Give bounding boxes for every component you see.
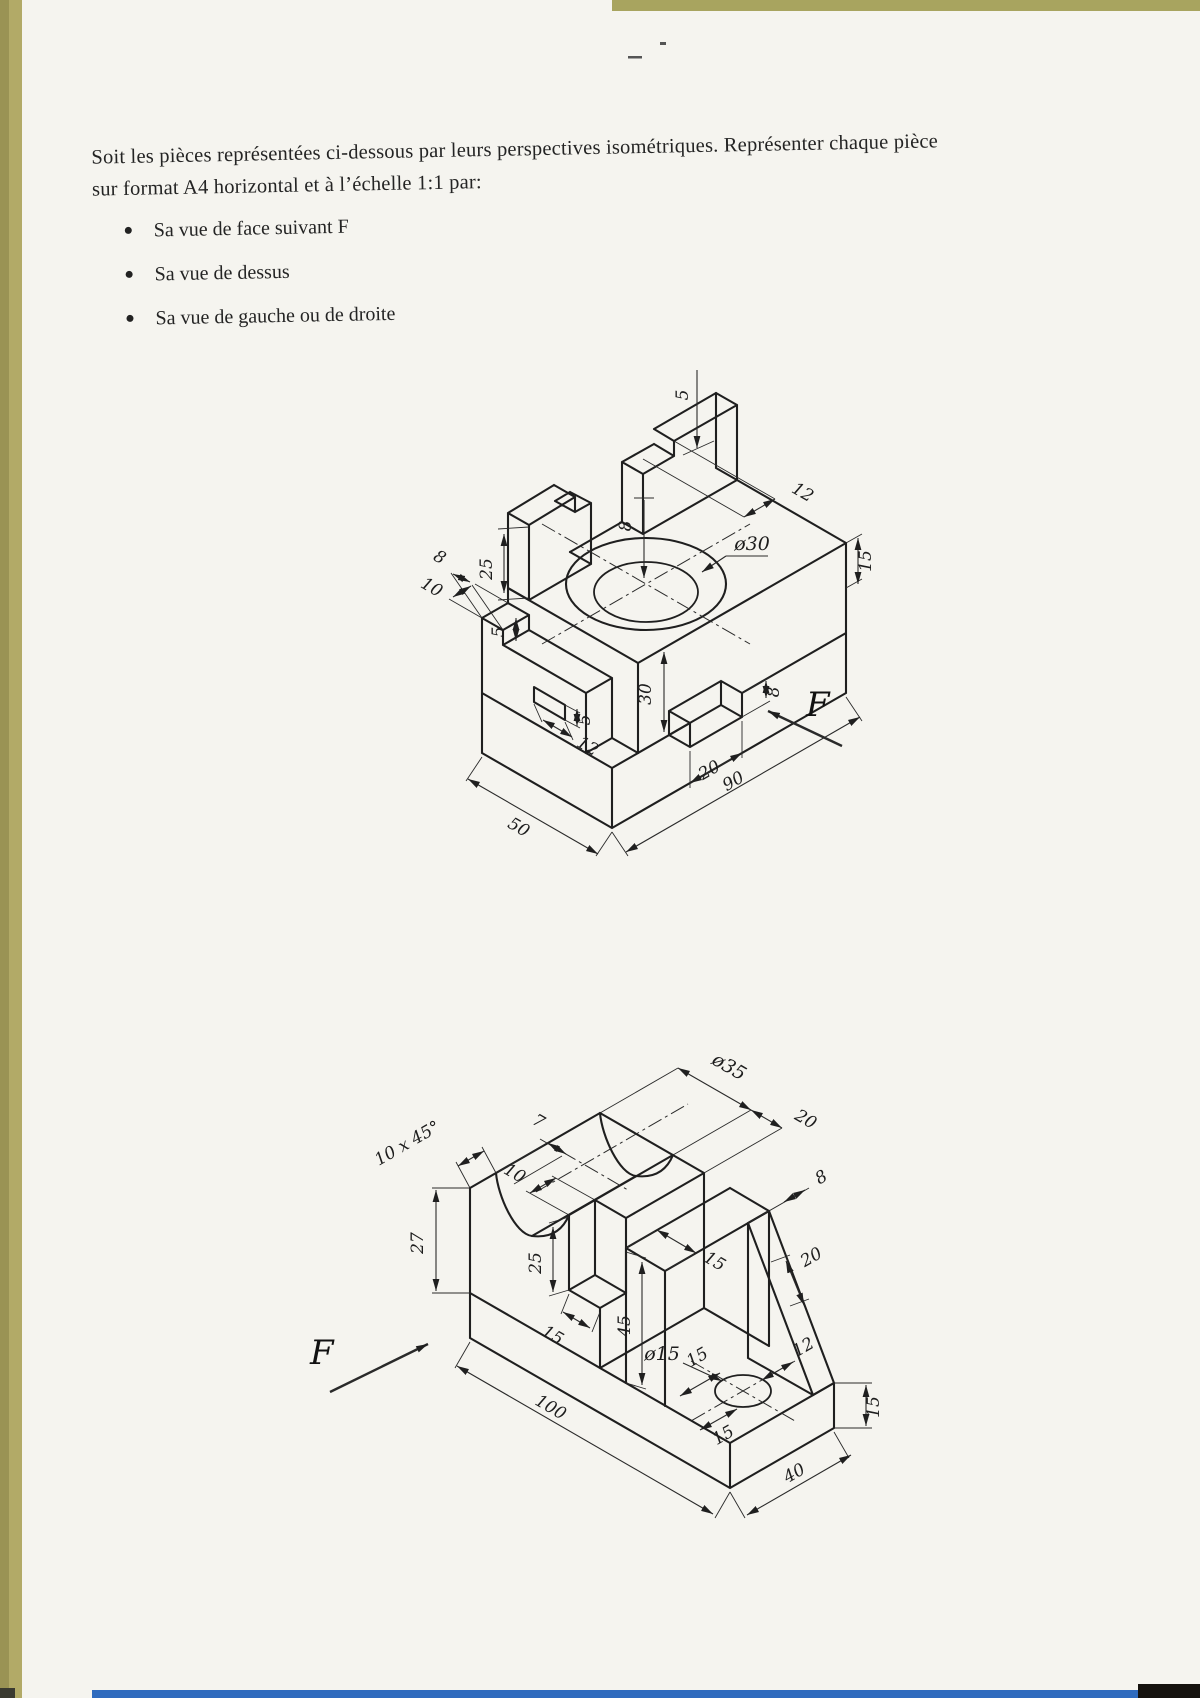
fig2-dim-rib-length: 20 (796, 1244, 826, 1273)
fig2-dim-base-height: 15 (864, 1396, 884, 1418)
fig2-dim-notch-depth: 25 (526, 1252, 546, 1275)
fig2-wedge-rib (748, 1211, 834, 1395)
scan-speck (660, 42, 666, 45)
fig2-groove-centerlines (536, 1104, 688, 1192)
fig2-dim-hole-diameter: ø15 (643, 1343, 680, 1365)
fig2-view-direction-label: F (309, 1333, 335, 1373)
fig2-dim-width: 40 (779, 1460, 809, 1489)
fig1-dimensions: 25 5 12 15 8 ø30 8 (417, 370, 876, 856)
fig2-dim-pillar-height: 45 (615, 1315, 635, 1338)
figure1-isometric-drawing: 25 5 12 15 8 ø30 8 (417, 370, 876, 856)
fig1-dim-edge-height: 15 (856, 550, 876, 572)
fig2-dim-hole-to-edge: 12 (789, 1334, 818, 1362)
fig1-dim-notch-height: 8 (764, 686, 784, 697)
scanned-exercise-page: Soit les pièces représentées ci-dessous … (0, 0, 1200, 1698)
fig2-dim-top-edge: 7 (529, 1110, 549, 1133)
fig2-base-outline (470, 1293, 834, 1488)
fig2-dim-pillar-side: 15 (683, 1344, 712, 1372)
fig1-post-left (508, 485, 591, 600)
fig1-base-notch (669, 681, 742, 747)
fig1-dim-bore-depth: 8 (616, 520, 636, 531)
fig2-dim-rib-thickness: 8 (812, 1166, 832, 1189)
fig1-bore-centerlines (542, 524, 750, 644)
fig1-dim-wall-thickness: 10 (417, 574, 446, 602)
fig2-dim-hole-to-front: 15 (709, 1422, 738, 1450)
fig1-dim-post-notch-width: 12 (788, 479, 817, 507)
fig2-block-outline (470, 1113, 704, 1368)
fig2-groove-far-arc (600, 1113, 673, 1176)
fig1-dim-length: 90 (719, 768, 748, 796)
fig1-post-right (622, 393, 737, 534)
figure2-isometric-drawing: 7 10 x 45° ø35 20 10 25 15 (309, 1048, 884, 1518)
fig2-groove-silhouette (532, 1155, 673, 1236)
fig1-counterbore-inner (594, 562, 698, 622)
scan-speck (628, 56, 642, 59)
fig2-notch (569, 1200, 626, 1293)
fig2-dim-chamfer: 10 x 45° (371, 1117, 444, 1170)
fig2-dimensions: 7 10 x 45° ø35 20 10 25 15 (309, 1048, 884, 1518)
fig1-view-direction-label: F (805, 685, 831, 725)
fig1-dim-step-depth: 5 (489, 627, 509, 638)
fig1-dim-bore-diameter: ø30 (733, 533, 770, 555)
fig1-dim-slot-length: 12 (573, 733, 602, 761)
fig2-dim-left-height: 27 (408, 1232, 428, 1255)
fig2-dim-notch-width: 10 (500, 1160, 529, 1188)
fig1-dim-slot-height: 5 (575, 715, 595, 726)
fig1-dim-tab-width: 8 (430, 546, 450, 569)
fig1-dim-body-height: 30 (636, 683, 656, 705)
fig1-dim-width: 50 (504, 814, 533, 842)
fig1-main-block (508, 393, 846, 753)
fig1-dim-post-notch-depth: 5 (673, 390, 693, 401)
technical-drawings-canvas: 25 5 12 15 8 ø30 8 (0, 0, 1200, 1698)
fig2-dim-groove-diameter: ø35 (707, 1048, 750, 1085)
fig2-dim-shoulder: 20 (790, 1105, 820, 1134)
fig1-dim-post-height: 25 (477, 558, 497, 581)
fig2-groove-near-arc (496, 1173, 569, 1236)
